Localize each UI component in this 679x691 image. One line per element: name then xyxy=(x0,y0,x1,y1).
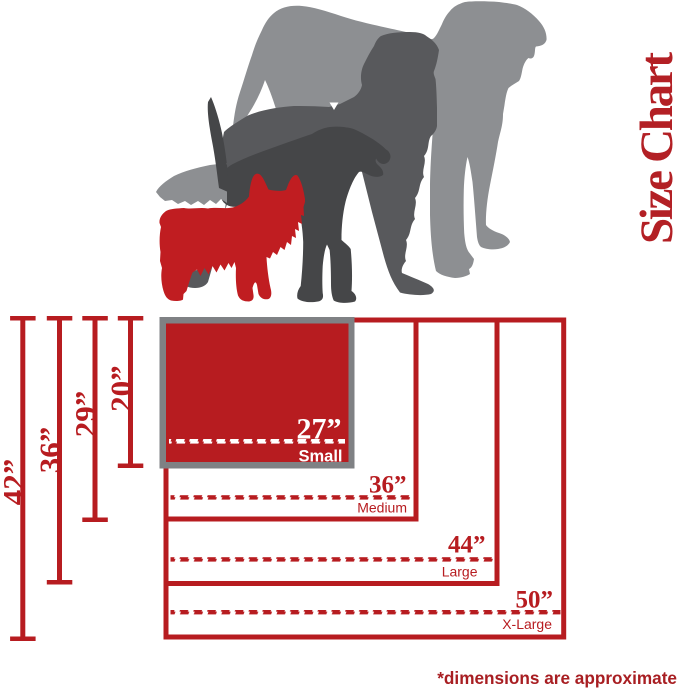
svg-text:Size Chart: Size Chart xyxy=(631,52,679,244)
svg-text:20”: 20” xyxy=(104,365,139,412)
svg-text:36”: 36” xyxy=(33,427,68,474)
svg-text:*dimensions are approximate: *dimensions are approximate xyxy=(437,668,677,688)
svg-text:Medium: Medium xyxy=(357,500,407,516)
svg-text:36”: 36” xyxy=(369,472,407,499)
svg-text:Large: Large xyxy=(442,564,478,580)
svg-text:29”: 29” xyxy=(68,391,103,438)
svg-text:Small: Small xyxy=(298,448,342,466)
svg-text:42”: 42” xyxy=(0,459,31,506)
svg-text:44”: 44” xyxy=(448,532,486,559)
svg-text:27”: 27” xyxy=(297,413,342,446)
svg-text:50”: 50” xyxy=(516,587,554,614)
svg-text:X-Large: X-Large xyxy=(502,616,552,632)
